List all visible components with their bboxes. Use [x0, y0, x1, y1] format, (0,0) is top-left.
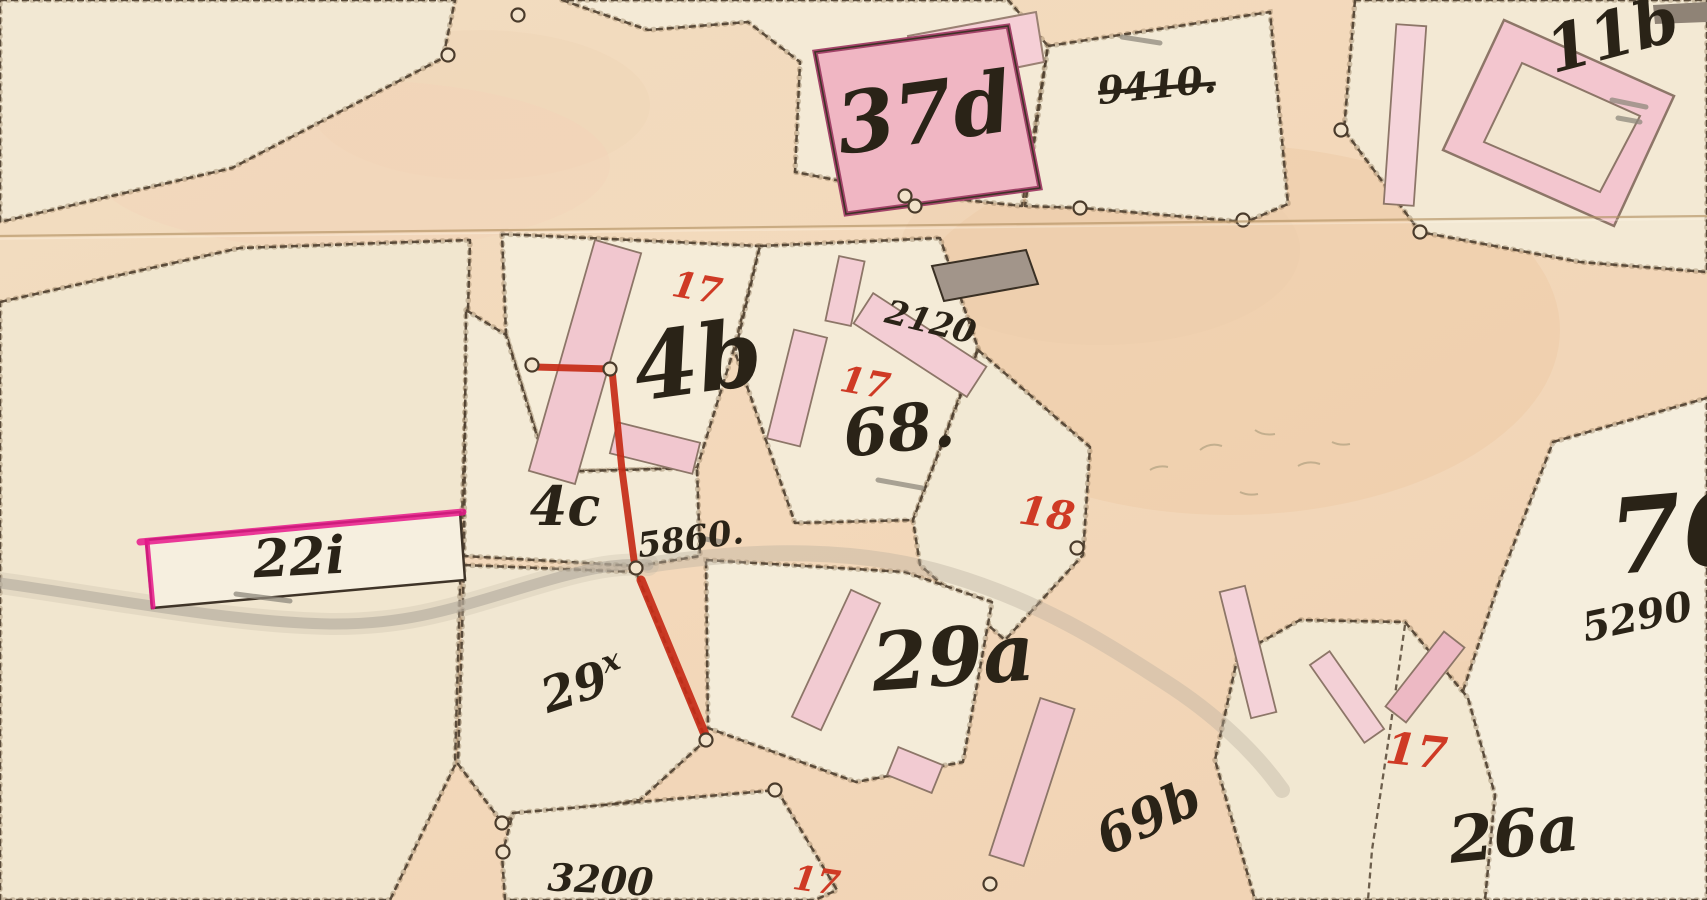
survey-point-marker	[497, 846, 510, 859]
map-canvas: 37d9410.11b2120174b1768.184c5860.22i29x2…	[0, 0, 1707, 900]
map-label-17: 17	[790, 858, 843, 900]
map-label-76: 76	[1604, 464, 1707, 599]
map-label-26a: 26a	[1444, 791, 1583, 879]
map-label-3200: 3200	[547, 854, 656, 900]
map-label-4c: 4c	[530, 474, 600, 538]
survey-point-marker	[1414, 226, 1427, 239]
survey-point-marker	[512, 9, 525, 22]
survey-point-marker	[1074, 202, 1087, 215]
red-survey-line	[535, 367, 610, 369]
map-label-17: 17	[1383, 723, 1450, 780]
map-label-29a: 29a	[867, 604, 1037, 709]
map-label-18: 18	[1016, 486, 1078, 540]
survey-point-marker	[1071, 542, 1084, 555]
survey-point-marker	[984, 878, 997, 891]
survey-point-marker	[700, 734, 713, 747]
map-label-4b: 4b	[626, 298, 768, 423]
survey-point-marker	[526, 359, 539, 372]
survey-point-marker	[899, 190, 912, 203]
survey-point-marker	[442, 49, 455, 62]
map-label-68: 68.	[839, 387, 958, 473]
map-label-22i: 22i	[250, 525, 346, 591]
survey-point-marker	[496, 817, 509, 830]
survey-point-marker	[1335, 124, 1348, 137]
map-viewport: 37d9410.11b2120174b1768.184c5860.22i29x2…	[0, 0, 1707, 900]
survey-point-marker	[604, 363, 617, 376]
survey-point-marker	[909, 200, 922, 213]
survey-point-marker	[769, 784, 782, 797]
